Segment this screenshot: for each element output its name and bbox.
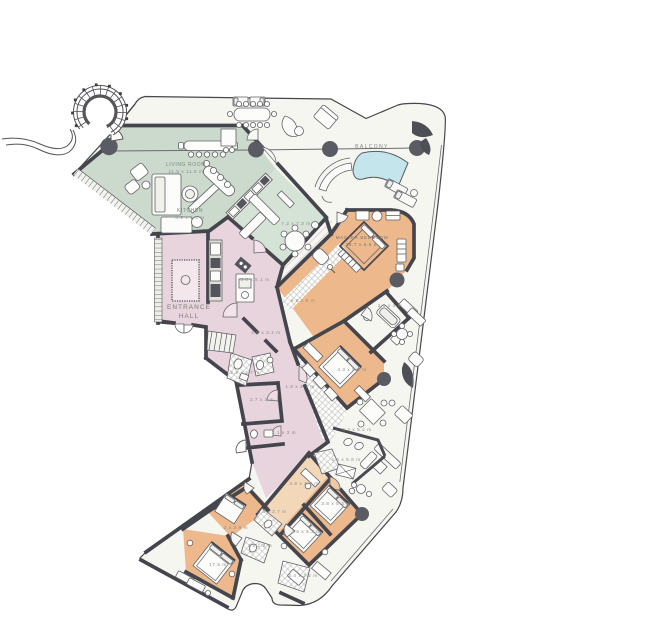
svg-text:HALL: HALL — [179, 313, 199, 320]
svg-text:BALCONY: BALCONY — [355, 144, 389, 150]
svg-text:3.8 x 5.3 m: 3.8 x 5.3 m — [321, 501, 350, 506]
svg-text:ENTRANCE: ENTRANCE — [167, 304, 211, 311]
svg-text:3.8 x 2.7 m: 3.8 x 2.7 m — [289, 481, 318, 486]
svg-text:4.6 x 5.8 m: 4.6 x 5.8 m — [331, 457, 360, 462]
svg-text:2.2 x 2.7 m: 2.2 x 2.7 m — [230, 370, 259, 375]
svg-text:7.2 x 7.3 m: 7.2 x 7.3 m — [281, 221, 310, 226]
svg-text:4.9 x 5.4 m: 4.9 x 5.4 m — [175, 215, 204, 220]
svg-text:17.5 m: 17.5 m — [209, 562, 227, 567]
svg-text:3.4 x 3.2 m: 3.4 x 3.2 m — [288, 573, 317, 578]
svg-text:1.8 x 4.7 m: 1.8 x 4.7 m — [285, 384, 314, 389]
svg-text:3 x 1.8 m: 3 x 1.8 m — [248, 543, 272, 548]
svg-text:18.7 x 5.9 m: 18.7 x 5.9 m — [346, 242, 378, 247]
svg-text:2.5 x 3 m: 2.5 x 3 m — [378, 303, 402, 308]
svg-text:4.3 x 5.2 m: 4.3 x 5.2 m — [337, 367, 366, 372]
svg-text:6.2 x 5.2 m: 6.2 x 5.2 m — [342, 427, 371, 432]
svg-text:KITCHEN: KITCHEN — [177, 208, 203, 214]
svg-text:2.8 x 2.7 m: 2.8 x 2.7 m — [257, 509, 286, 514]
svg-text:2.8 x 3.2 m: 2.8 x 3.2 m — [251, 330, 280, 335]
svg-text:11.5 x 11.5 m: 11.5 x 11.5 m — [169, 169, 204, 174]
svg-text:3.6 x 5.3 m: 3.6 x 5.3 m — [291, 529, 320, 534]
svg-text:MASTER BEDROOM: MASTER BEDROOM — [336, 235, 389, 240]
svg-text:6.8 x 8 m: 6.8 x 8 m — [291, 298, 315, 303]
svg-text:2 x 3.9 m: 2 x 3.9 m — [224, 525, 248, 530]
svg-text:5.8 x 5.1 m: 5.8 x 5.1 m — [240, 277, 269, 282]
svg-text:2.7 x 3 m: 2.7 x 3 m — [250, 397, 274, 402]
svg-text:2.1 x 3 m: 2.1 x 3 m — [272, 430, 296, 435]
svg-text:LIVING ROOM: LIVING ROOM — [166, 162, 206, 168]
